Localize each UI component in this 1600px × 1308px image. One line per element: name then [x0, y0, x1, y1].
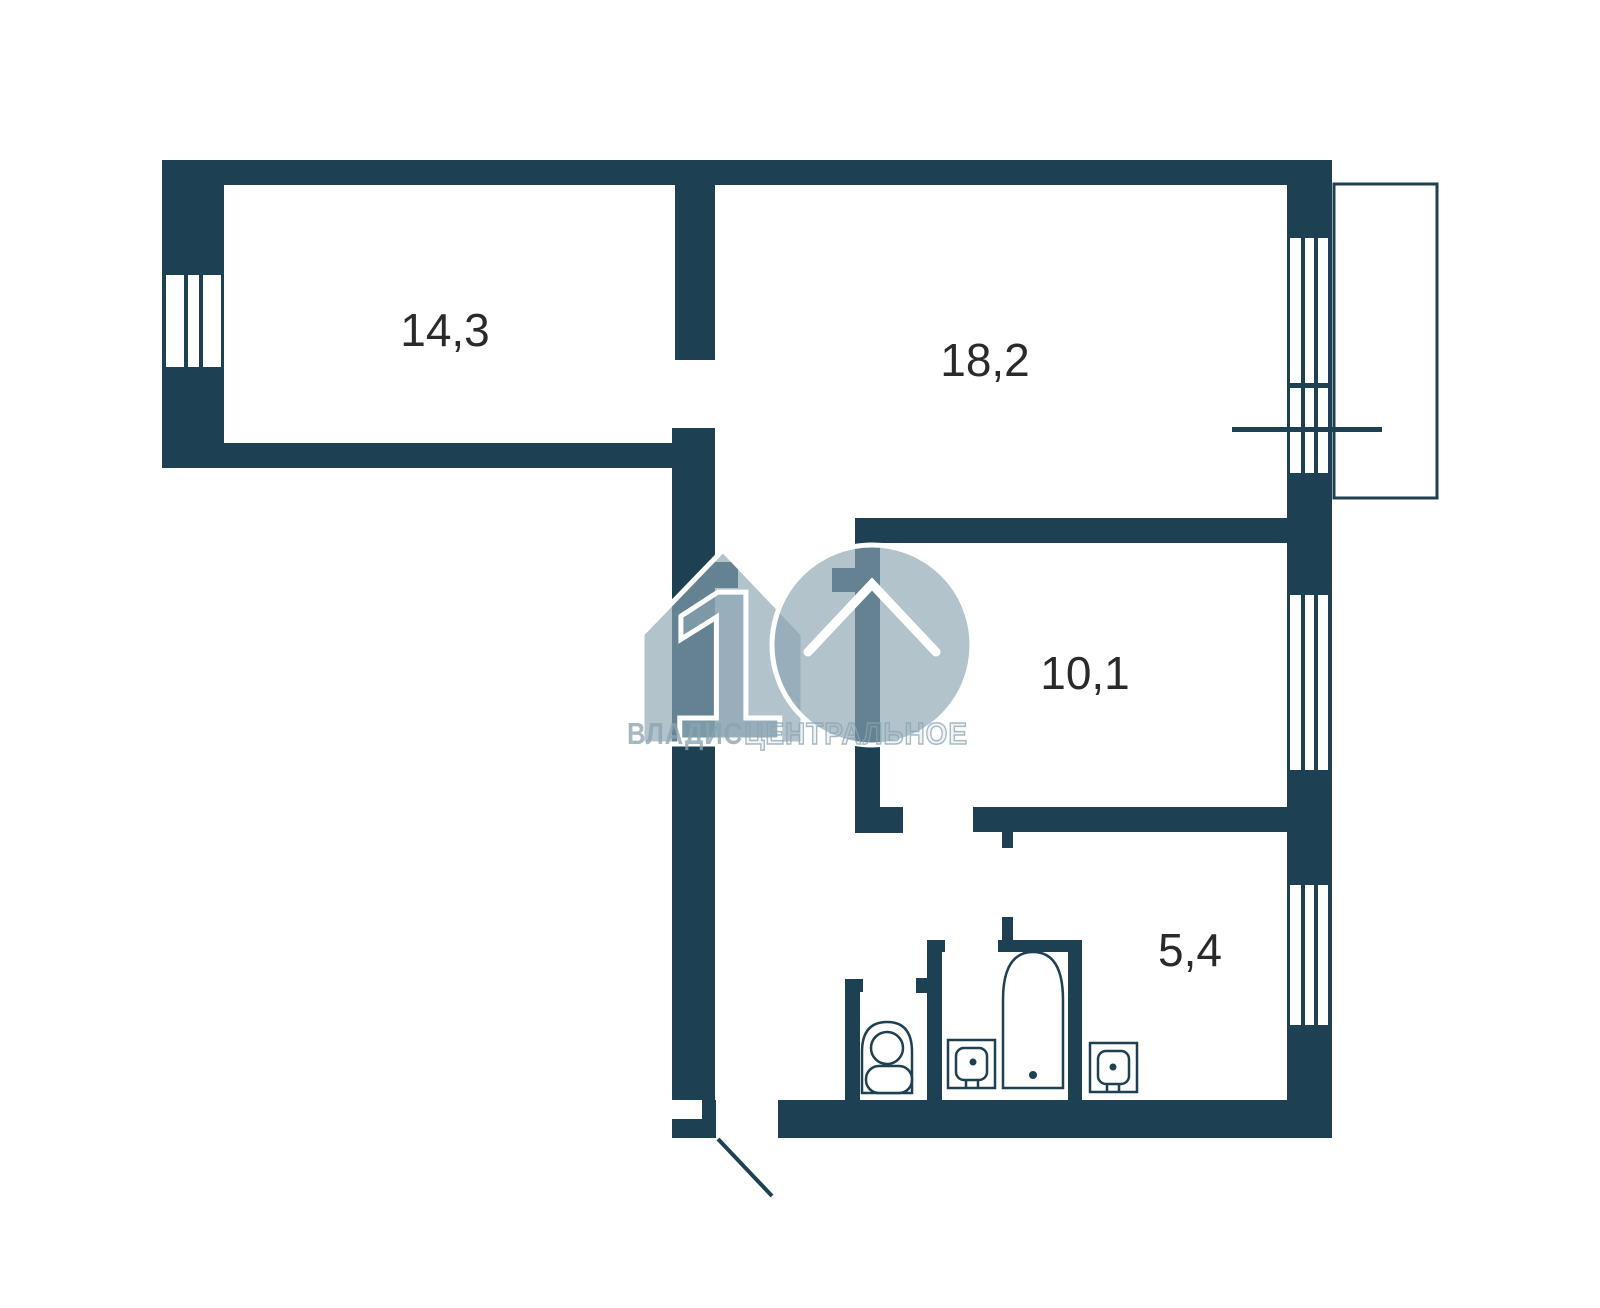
entry-door-opening	[716, 1100, 778, 1138]
room-label-5-4: 5,4	[1158, 924, 1222, 976]
window-living-room	[1290, 238, 1328, 473]
floor-plan-canvas: 1 ВЛАДИС ЦЕНТРАЛЬНОЕ 14,3 18,2 10,1 5,4	[0, 0, 1600, 1308]
kitchen-sink-icon	[1090, 1043, 1137, 1092]
room-label-10-1: 10,1	[1040, 647, 1130, 699]
bathroom-fixtures	[862, 952, 1137, 1093]
bath-right-wall	[1068, 940, 1082, 1100]
wc-door-jamb-left	[845, 979, 863, 992]
kitchen-door-jamb-top	[1002, 832, 1013, 848]
watermark-brand-text: ВЛАДИС	[627, 716, 743, 751]
room-10-1-door-jamb	[880, 807, 903, 833]
kitchen-top-wall	[973, 807, 1287, 832]
balcony-door-line	[1232, 427, 1382, 432]
balcony-outline	[1334, 184, 1437, 498]
watermark: 1 ВЛАДИС ЦЕНТРАЛЬНОЕ	[627, 545, 972, 786]
room-label-18-2: 18,2	[940, 334, 1030, 386]
room-10-1-top-wall	[855, 518, 1287, 543]
toilet-icon	[862, 1022, 912, 1093]
kitchen-door-jamb-bottom	[1002, 917, 1013, 940]
watermark-branch-text: ЦЕНТРАЛЬНОЕ	[744, 716, 968, 751]
bathtub-icon	[1003, 952, 1063, 1088]
window-room-14-3	[166, 275, 221, 367]
wc-door-jamb-right	[916, 978, 927, 993]
room-14-3-bottom-wall	[162, 443, 675, 468]
watermark-circle-icon	[772, 545, 972, 745]
window-kitchen	[1290, 885, 1328, 1025]
entry-door-leaf	[718, 1139, 772, 1196]
bath-door-jamb-left	[927, 940, 945, 952]
bathroom-sink-icon	[948, 1040, 995, 1088]
entry-wall-notch	[672, 1100, 702, 1119]
top-exterior-wall	[162, 160, 1330, 185]
wc-bath-divider-wall	[927, 940, 942, 1100]
window-room-10-1	[1290, 595, 1328, 770]
floor-plan-page: 1 ВЛАДИС ЦЕНТРАЛЬНОЕ 14,3 18,2 10,1 5,4	[0, 0, 1600, 1308]
room-14-3-right-wall	[675, 185, 715, 360]
wc-left-wall	[845, 979, 860, 1100]
room-label-14-3: 14,3	[400, 304, 490, 356]
